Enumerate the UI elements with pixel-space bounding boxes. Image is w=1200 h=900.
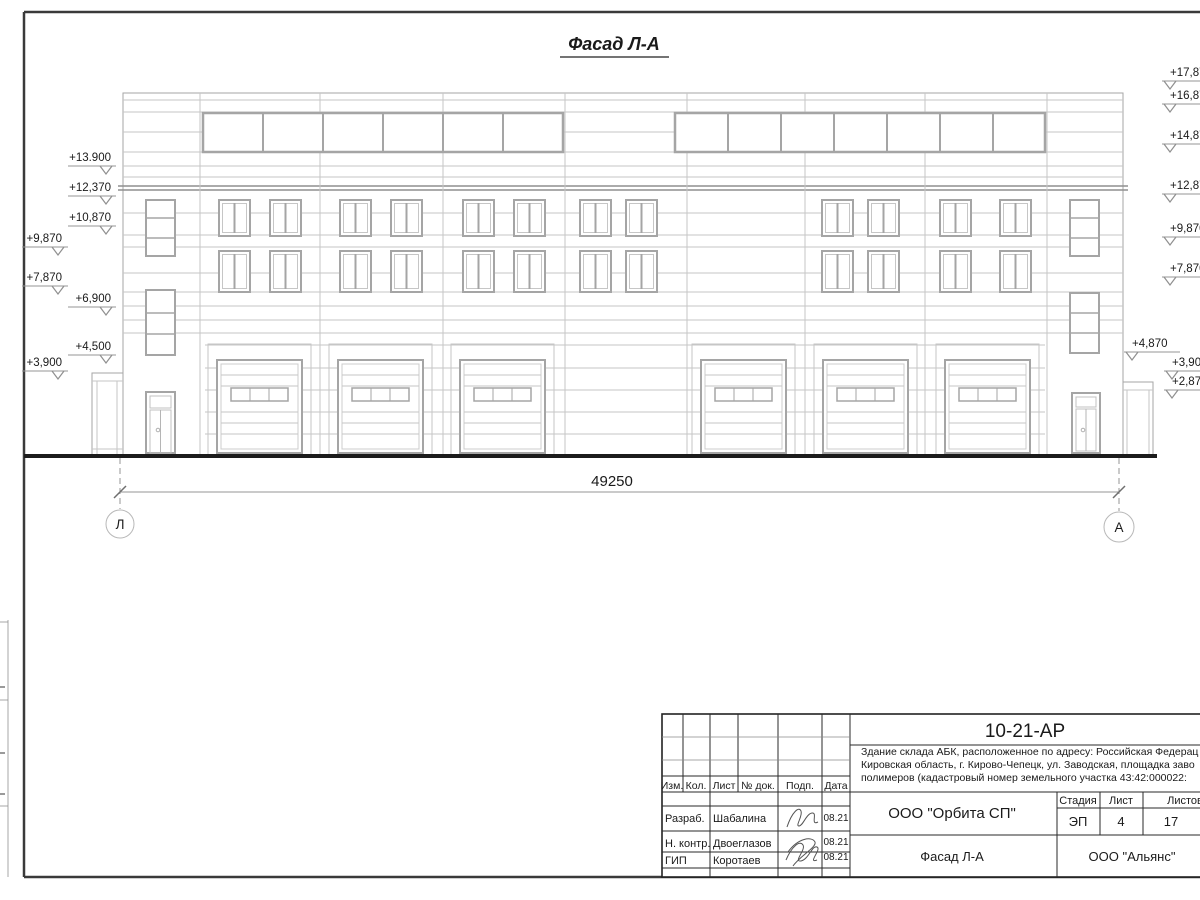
project-line-2: Кировская область, г. Кирово-Чепецк, ул.… (861, 759, 1195, 771)
elevation-mark: +3,900 (22, 357, 68, 379)
sheets-label: Листов (1167, 795, 1200, 807)
elevation-value: +16,87 (1170, 90, 1200, 102)
clerestory-band-left (203, 113, 563, 152)
col-data: Дата (824, 780, 847, 792)
elevation-marks-right: +17,87 +16,87 +14,87 +12,87 +9,870 +7,87… (1124, 67, 1200, 398)
col-podp: Подп. (786, 780, 814, 792)
elevation-value: +7,870 (27, 272, 63, 284)
col-doc: № док. (741, 780, 775, 792)
document-code: 10-21-АР (985, 721, 1065, 742)
elevation-mark: +7,870 (22, 272, 68, 294)
elevation-value: +12,370 (69, 182, 111, 194)
elevation-mark: +14,87 (1162, 130, 1200, 152)
elevation-value: +12,87 (1170, 180, 1200, 192)
stage-label: Стадия (1059, 795, 1097, 807)
axis-label-left: Л (116, 517, 125, 532)
facade-drawing (24, 93, 1157, 456)
row-role: Разраб. (665, 813, 705, 825)
drawing-title-text: Фасад Л-А (568, 34, 660, 54)
elevation-value: +9,870 (27, 233, 63, 245)
elevation-value: +3,900 (27, 357, 63, 369)
elevation-marks-left: +13.900 +12,370 +10,870 +9,870 +7,870 +6… (22, 152, 116, 379)
elevation-mark: +16,87 (1162, 90, 1200, 112)
elevation-mark: +10,870 (68, 212, 116, 234)
window-row-lower (219, 251, 1031, 292)
stamp-sheet-title: Фасад Л-А (920, 849, 984, 864)
title-block: Изм. Кол. Лист № док. Подп. Дата Разраб.… (661, 714, 1200, 877)
row-role: ГИП (665, 855, 687, 867)
elevation-value: +17,87 (1170, 67, 1200, 79)
elevation-value: +3,900 (1172, 357, 1200, 369)
row-date: 08.21 (823, 852, 848, 863)
facade-sheet-svg: Фасад Л-А (0, 0, 1200, 900)
project-line-3: полимеров (кадастровый номер земельного … (861, 772, 1187, 784)
elevation-value: +9,870 (1170, 223, 1200, 235)
left-tower (146, 200, 175, 453)
elevation-mark: +17,87 (1162, 67, 1200, 89)
elevation-value: +2,870 (1172, 376, 1200, 388)
side-strip (0, 620, 8, 877)
contractor-name: ООО "Альянс" (1089, 849, 1176, 864)
elevation-mark: +9,870 (1162, 223, 1200, 245)
col-kol: Кол. (686, 780, 707, 792)
row-role: Н. контр. (665, 838, 710, 850)
col-list: Лист (713, 780, 736, 792)
row-date: 08.21 (823, 813, 848, 824)
drawing-sheet: Фасад Л-А (0, 0, 1200, 900)
elevation-value: +4,870 (1132, 338, 1168, 350)
right-tower (1070, 200, 1100, 453)
project-line-1: Здание склада АБК, расположенное по адре… (861, 746, 1198, 758)
elevation-value: +14,87 (1170, 130, 1200, 142)
garage-doors (208, 344, 1039, 455)
organization-name: ООО "Орбита СП" (888, 805, 1016, 822)
elevation-value: +10,870 (69, 212, 111, 224)
right-porch (1123, 382, 1153, 455)
overall-dimension: 49250 (591, 473, 633, 490)
axis-label-right: А (1114, 520, 1123, 535)
stage-value: ЭП (1069, 814, 1088, 829)
window-row-upper (219, 200, 1031, 236)
left-porch (92, 373, 123, 455)
elevation-value: +4,500 (76, 341, 112, 353)
elevation-mark: +4,500 (68, 341, 116, 363)
sheet-value: 4 (1117, 814, 1124, 829)
row-name: Шабалина (713, 813, 767, 825)
row-name: Двоеглазов (713, 838, 772, 850)
elevation-mark: +2,870 (1164, 376, 1200, 398)
row-name: Коротаев (713, 855, 761, 867)
elevation-mark: +7,870 (1162, 263, 1200, 285)
elevation-value: +7,870 (1170, 263, 1200, 275)
drawing-title: Фасад Л-А (560, 34, 669, 57)
elevation-value: +13.900 (69, 152, 111, 164)
row-date: 08.21 (823, 837, 848, 848)
elevation-mark: +12,370 (68, 182, 116, 204)
col-izm: Изм. (661, 780, 684, 792)
elevation-mark: +9,870 (22, 233, 68, 255)
elevation-value: +6,900 (76, 293, 112, 305)
sheets-value: 17 (1164, 814, 1178, 829)
elevation-mark: +13.900 (68, 152, 116, 174)
elevation-mark: +12,87 (1162, 180, 1200, 202)
dimension-and-axes: 49250 Л А (106, 458, 1134, 542)
elevation-mark: +6,900 (68, 293, 116, 315)
sheet-label: Лист (1109, 795, 1133, 807)
clerestory-band-right (675, 113, 1045, 152)
